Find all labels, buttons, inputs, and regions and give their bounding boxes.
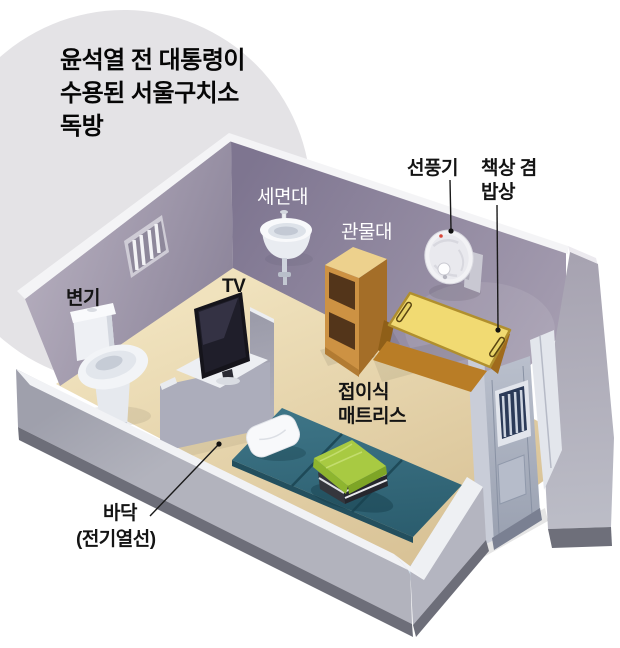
label-locker: 관물대 xyxy=(341,221,392,245)
label-floor-line-1: 바닥 xyxy=(103,501,156,527)
leader-line-desk xyxy=(497,205,498,328)
label-mattress: 접이식 매트리스 xyxy=(338,381,406,429)
label-floor: 바닥 (전기열선) xyxy=(76,501,156,553)
fan-logo-dot xyxy=(439,234,443,238)
title-line-3: 독방 xyxy=(60,110,245,143)
label-floor-line-2: (전기열선) xyxy=(76,527,156,553)
leader-line-fan xyxy=(450,180,451,229)
label-desk-line-2: 밥상 xyxy=(481,181,537,205)
label-fan: 선풍기 xyxy=(407,157,458,181)
title-line-2: 수용된 서울구치소 xyxy=(60,77,245,110)
leader-dot-fan xyxy=(448,228,453,233)
page-title: 윤석열 전 대통령이 수용된 서울구치소 독방 xyxy=(60,44,245,143)
door-window xyxy=(495,380,531,447)
label-mattress-line-2: 매트리스 xyxy=(338,405,406,429)
leader-dot-floor xyxy=(216,441,221,446)
label-tv: TV xyxy=(222,275,245,299)
leader-dot-desk xyxy=(495,327,500,332)
label-desk-line-1: 책상 겸 xyxy=(481,157,537,181)
label-toilet: 변기 xyxy=(66,287,100,311)
infographic-cell-diagram: 윤석열 전 대통령이 수용된 서울구치소 독방 변기 세면대 관물대 선풍기 책… xyxy=(0,0,620,648)
label-washbasin: 세면대 xyxy=(257,186,308,210)
title-line-1: 윤석열 전 대통령이 xyxy=(60,44,245,77)
label-mattress-line-1: 접이식 xyxy=(338,381,406,405)
label-desk: 책상 겸 밥상 xyxy=(481,157,537,205)
